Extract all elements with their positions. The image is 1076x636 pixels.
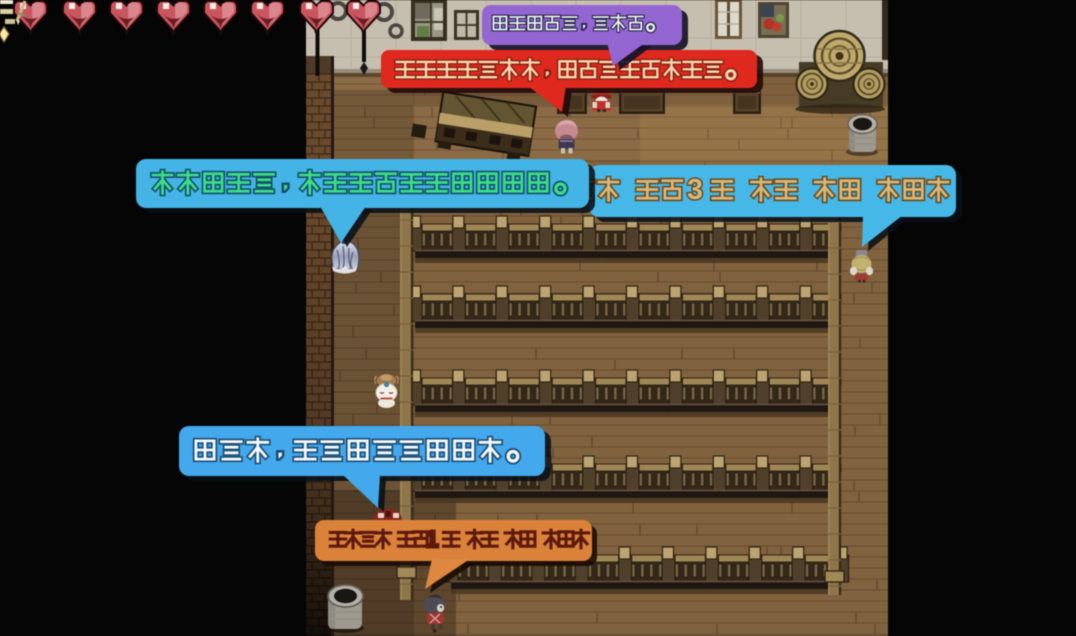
svg-text:3: 3 bbox=[687, 174, 703, 206]
svg-text:1: 1 bbox=[426, 526, 439, 552]
